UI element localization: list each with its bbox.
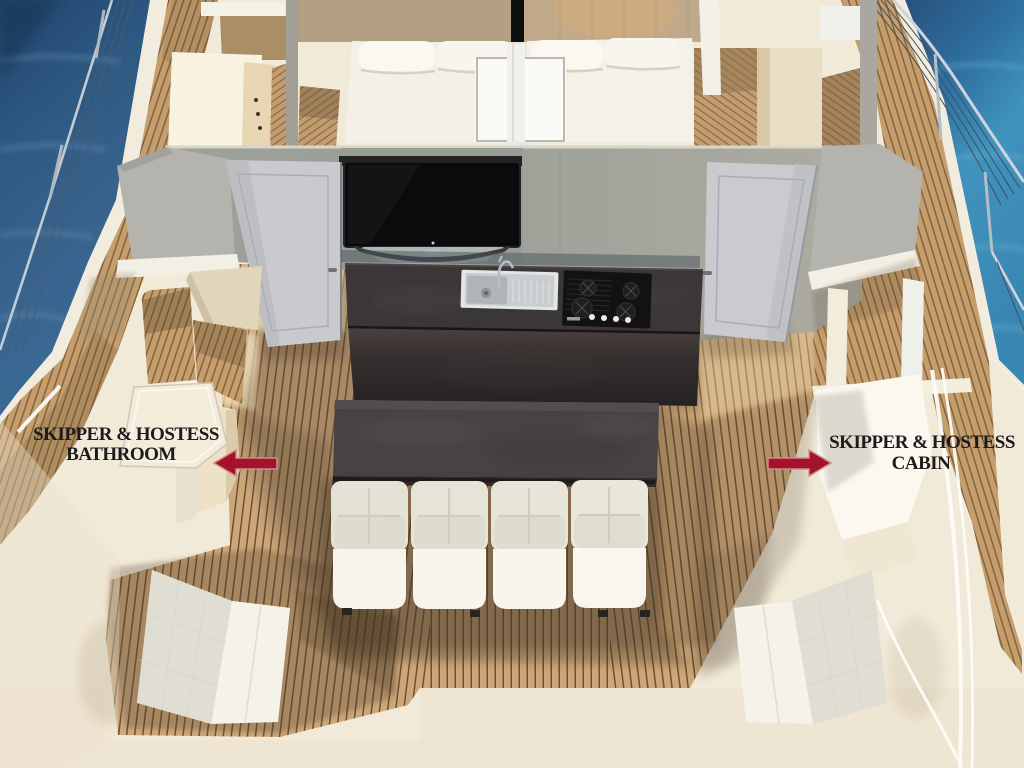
svg-text:SKIPPER & HOSTESS: SKIPPER & HOSTESS — [829, 432, 1015, 453]
svg-text:SKIPPER & HOSTESS: SKIPPER & HOSTESS — [33, 424, 219, 445]
svg-text:BATHROOM: BATHROOM — [66, 444, 176, 465]
svg-text:CABIN: CABIN — [892, 453, 952, 474]
